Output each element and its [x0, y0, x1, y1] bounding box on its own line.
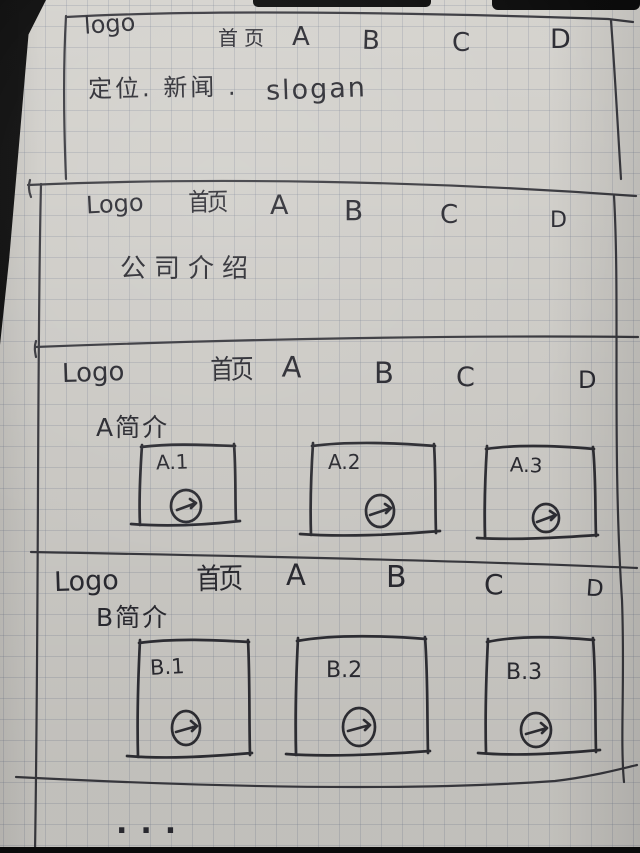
intro-nav-item-c: C — [440, 200, 458, 230]
section-b-nav-item-c: C — [484, 568, 504, 601]
section1-top-border — [66, 13, 633, 22]
hero-tagline: 定位. 新闻 . — [88, 67, 239, 105]
card-b3-label: B.3 — [506, 660, 542, 685]
section2-left-hook — [29, 180, 31, 197]
intro-nav-item-a: A — [270, 190, 288, 221]
section-b-nav-item-b: B — [386, 560, 407, 595]
section4-top-divider — [31, 552, 637, 568]
hero-nav-item-d: D — [550, 24, 571, 55]
section-b-heading: B简介 — [96, 598, 169, 634]
card-a2-arrow-right-circle-icon — [366, 495, 394, 527]
hero-nav-item-a: A — [292, 22, 310, 52]
section-b-nav-item-d: D — [585, 575, 604, 602]
card-a1-arrow-right-circle-icon — [171, 490, 201, 522]
section3-left-hook — [35, 341, 36, 357]
card-b1-arrow-right-circle-icon — [172, 711, 200, 745]
bottom-divider — [16, 765, 637, 787]
company-intro-text: 公司介绍 — [120, 248, 256, 285]
intro-nav-item-b: B — [344, 194, 363, 227]
intro-nav-item-d: D — [550, 208, 567, 233]
section1-right-border — [611, 21, 621, 179]
intro-nav-item-home: 首页 — [188, 182, 226, 219]
card-a3-arrow-right-circle-icon — [533, 504, 559, 532]
continuation-ellipsis: ... — [116, 806, 189, 841]
right-outer-border — [614, 196, 624, 782]
hero-nav-logo: logo — [83, 8, 136, 40]
hero-nav-item-c: C — [452, 28, 470, 58]
card-b2-label: B.2 — [326, 658, 362, 683]
section-a-nav-item-home: 首页 — [210, 347, 251, 387]
photo-backdrop-bottom-edge — [0, 847, 640, 853]
card-b3-arrow-right-circle-icon — [521, 713, 551, 747]
card-b2-arrow-right-circle-icon — [343, 708, 375, 746]
hero-slogan: slogan — [265, 72, 367, 107]
card-b3-frame — [478, 637, 600, 754]
left-outer-border — [35, 184, 41, 852]
section-a-heading: A简介 — [96, 408, 169, 444]
section-b-nav-item-home: 首页 — [196, 555, 241, 598]
card-a3-label: A.3 — [510, 452, 543, 477]
hero-nav-item-b: B — [361, 26, 380, 57]
section-b-nav-item-a: A — [286, 558, 306, 592]
card-a1-label: A.1 — [156, 449, 189, 474]
section-a-nav-item-d: D — [578, 366, 596, 394]
card-b1-label: B.1 — [149, 654, 185, 680]
card-b2-frame — [286, 636, 430, 755]
section-a-nav-item-c: C — [456, 362, 475, 393]
hero-nav-item-home: 首页 — [218, 22, 270, 51]
section-b-nav-logo: Logo — [53, 565, 119, 598]
section1-left-border — [64, 16, 66, 179]
intro-nav-logo: Logo — [85, 189, 144, 220]
card-b1-frame — [127, 640, 252, 758]
photo-backdrop-top-edge — [253, 0, 431, 7]
section3-top-divider — [35, 336, 638, 347]
card-a2-label: A.2 — [328, 450, 360, 474]
photo-backdrop-top-right-edge — [492, 0, 640, 10]
section-a-nav-item-b: B — [374, 356, 394, 390]
section-a-nav-item-a: A — [281, 350, 303, 385]
section-a-nav-logo: Logo — [61, 357, 124, 389]
photo-of-wireframe-sketch: logo 首页 A B C D 定位. 新闻 . slogan Logo 首页 … — [0, 0, 640, 853]
